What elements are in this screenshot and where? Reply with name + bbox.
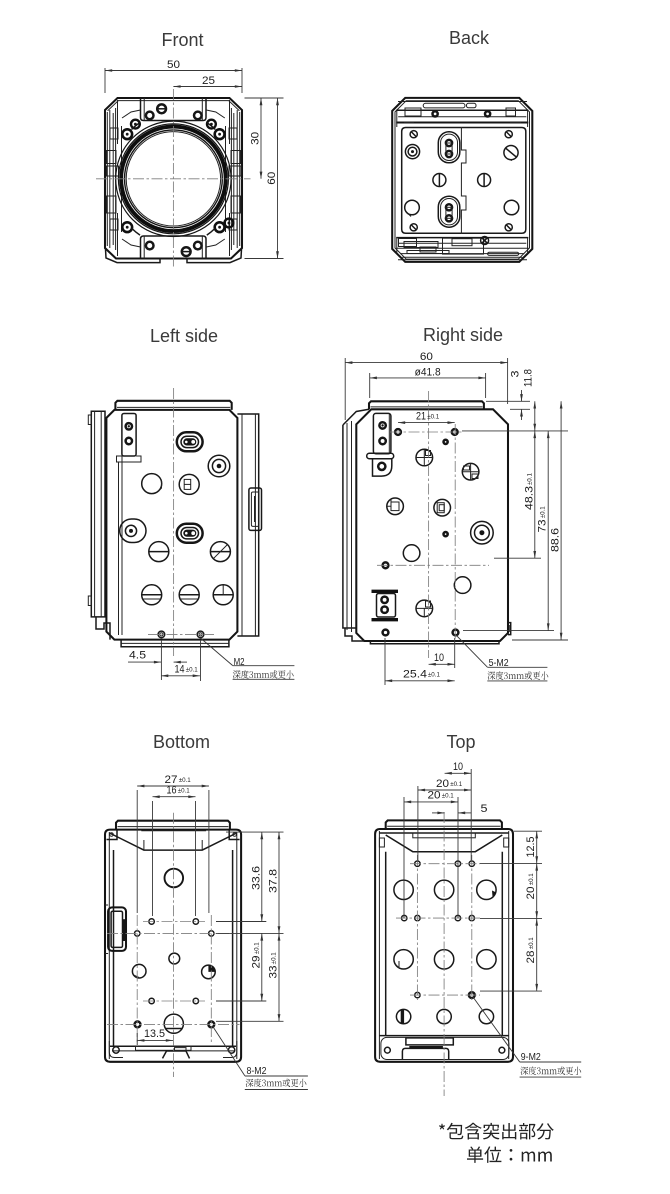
svg-text:33.6: 33.6 bbox=[250, 866, 262, 890]
svg-text:37.8: 37.8 bbox=[268, 869, 280, 893]
svg-text:20: 20 bbox=[525, 887, 537, 900]
svg-text:4.5: 4.5 bbox=[129, 650, 146, 662]
svg-text:11.8: 11.8 bbox=[523, 369, 535, 387]
svg-text:Top: Top bbox=[446, 732, 475, 752]
svg-text:25.4: 25.4 bbox=[403, 669, 427, 681]
svg-text:Back: Back bbox=[449, 28, 490, 48]
svg-text:20: 20 bbox=[436, 778, 449, 790]
svg-text:33: 33 bbox=[268, 966, 280, 979]
svg-text:10: 10 bbox=[453, 761, 463, 773]
svg-text:Bottom: Bottom bbox=[153, 732, 210, 752]
svg-text:±0.1: ±0.1 bbox=[271, 952, 278, 965]
svg-text:±0.1: ±0.1 bbox=[528, 937, 535, 950]
svg-text:14: 14 bbox=[175, 664, 185, 676]
svg-text:88.6: 88.6 bbox=[550, 528, 562, 552]
svg-text:3: 3 bbox=[509, 371, 521, 378]
svg-text:21: 21 bbox=[416, 410, 426, 422]
svg-text:±0.1: ±0.1 bbox=[186, 667, 199, 674]
svg-text:73: 73 bbox=[537, 520, 549, 533]
svg-text:16: 16 bbox=[167, 785, 177, 797]
svg-text:±0.1: ±0.1 bbox=[528, 873, 535, 886]
svg-text:±0.1: ±0.1 bbox=[540, 506, 547, 519]
svg-text:±0.1: ±0.1 bbox=[178, 788, 191, 795]
svg-text:50: 50 bbox=[167, 59, 180, 71]
svg-text:±0.1: ±0.1 bbox=[427, 413, 440, 420]
svg-text:28: 28 bbox=[525, 951, 537, 964]
svg-text:Left side: Left side bbox=[150, 326, 218, 346]
svg-text:30: 30 bbox=[250, 132, 262, 145]
svg-text:12.5: 12.5 bbox=[525, 837, 537, 858]
svg-text:8-M2: 8-M2 bbox=[247, 1066, 267, 1077]
svg-text:±0.1: ±0.1 bbox=[450, 781, 463, 788]
svg-text:9-M2: 9-M2 bbox=[521, 1052, 541, 1063]
svg-text:±0.1: ±0.1 bbox=[253, 942, 260, 955]
svg-text:±0.1: ±0.1 bbox=[526, 473, 533, 486]
svg-text:20: 20 bbox=[428, 790, 441, 802]
svg-text:13.5: 13.5 bbox=[144, 1028, 165, 1040]
svg-text:60: 60 bbox=[420, 351, 433, 363]
svg-text:25: 25 bbox=[202, 75, 215, 87]
svg-text:48.3: 48.3 bbox=[523, 486, 535, 510]
svg-text:5: 5 bbox=[481, 803, 488, 815]
svg-text:10: 10 bbox=[434, 652, 444, 664]
svg-text:29: 29 bbox=[250, 956, 262, 969]
svg-text:±0.1: ±0.1 bbox=[428, 672, 441, 679]
svg-text:60: 60 bbox=[266, 172, 278, 185]
svg-text:ø41.8: ø41.8 bbox=[415, 366, 441, 378]
svg-text:Right side: Right side bbox=[423, 325, 503, 345]
svg-text:±0.1: ±0.1 bbox=[179, 777, 192, 784]
svg-text:±0.1: ±0.1 bbox=[442, 793, 455, 800]
svg-text:Front: Front bbox=[161, 30, 203, 50]
